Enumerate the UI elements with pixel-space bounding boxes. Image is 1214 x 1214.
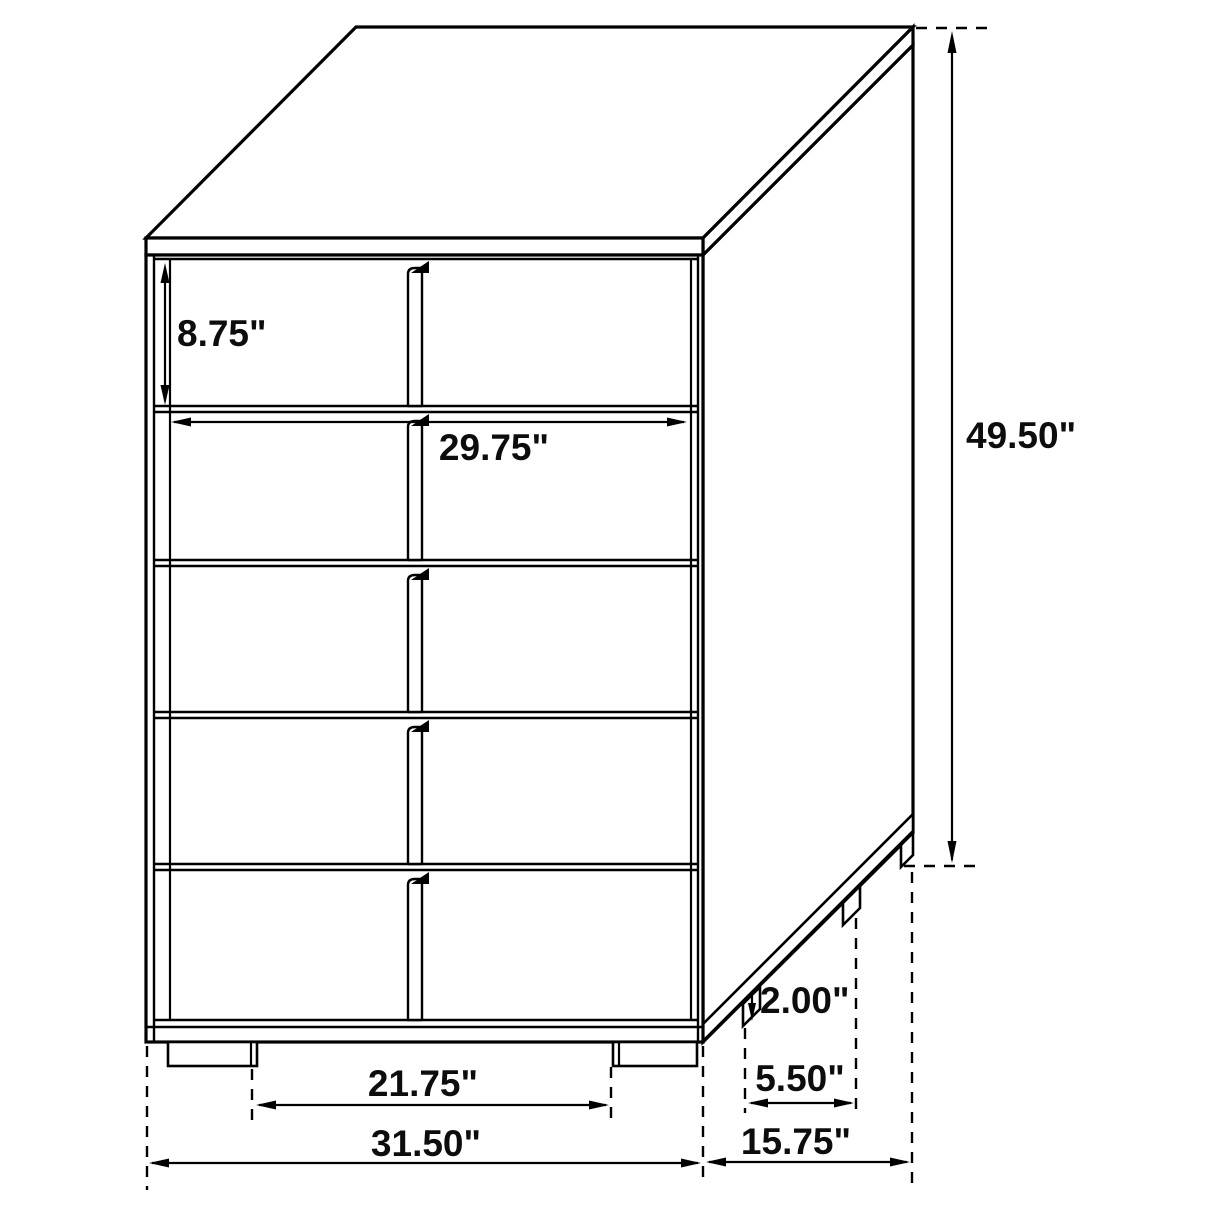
- dim-label-overall-height: 49.50": [966, 415, 1076, 456]
- arrow-left-icon: [748, 1099, 768, 1108]
- top-edge-front-band: [146, 238, 703, 255]
- arrow-left-icon: [706, 1158, 726, 1167]
- dimension-diagram: 8.75" 29.75" 49.50" 2.00" 5.50": [0, 0, 1214, 1214]
- dim-front-leg-spacing: 21.75": [252, 1063, 611, 1122]
- drawer-pull: [408, 421, 422, 560]
- chest-drawing: [146, 27, 913, 1066]
- dim-label-side-leg-spacing: 5.50": [755, 1058, 845, 1099]
- chest-dimension-drawing: 8.75" 29.75" 49.50" 2.00" 5.50": [0, 0, 1214, 1214]
- dim-label-leg-height: 2.00": [760, 980, 850, 1021]
- front-face: [146, 255, 703, 1042]
- front-leg-right: [613, 1042, 697, 1066]
- arrow-right-icon: [890, 1158, 910, 1167]
- dim-label-drawer-width: 29.75": [439, 427, 549, 468]
- drawer-pull: [408, 879, 422, 1020]
- arrow-up-icon: [948, 31, 957, 53]
- arrow-left-icon: [149, 1159, 169, 1168]
- arrow-left-icon: [256, 1101, 276, 1110]
- dim-label-top-drawer-height: 8.75": [177, 313, 267, 354]
- dim-label-overall-width: 31.50": [371, 1123, 481, 1164]
- dim-leg-height: 2.00": [748, 980, 850, 1021]
- front-leg-left: [168, 1042, 257, 1066]
- drawer-pull: [408, 727, 422, 864]
- dim-overall-height: 49.50": [904, 28, 1076, 866]
- drawer-pull: [408, 268, 422, 406]
- dim-label-front-leg-spacing: 21.75": [368, 1063, 478, 1104]
- arrow-right-icon: [834, 1099, 854, 1108]
- drawer-pull: [408, 575, 422, 712]
- arrow-right-icon: [681, 1159, 701, 1168]
- arrow-right-icon: [589, 1101, 609, 1110]
- arrow-down-icon: [948, 841, 957, 863]
- dim-label-overall-depth: 15.75": [741, 1121, 851, 1162]
